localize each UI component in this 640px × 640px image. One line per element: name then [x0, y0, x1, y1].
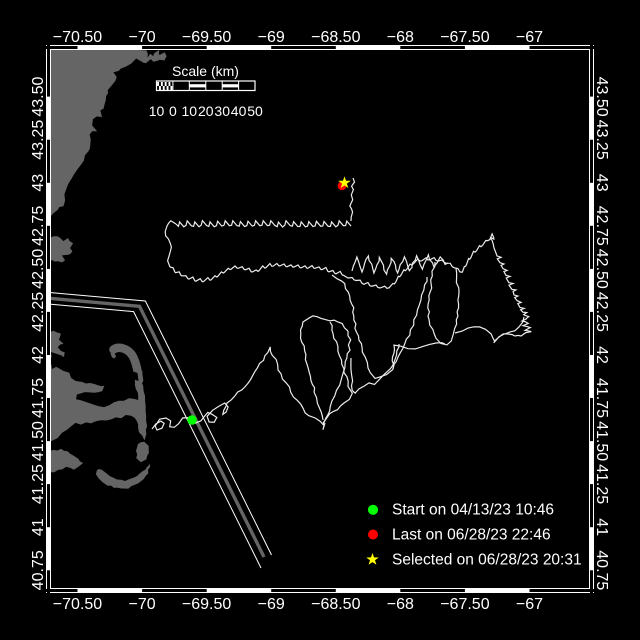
svg-text:−69.50: −69.50 [182, 29, 231, 46]
svg-text:41.50: 41.50 [30, 421, 47, 461]
svg-text:Scale (km): Scale (km) [172, 63, 239, 79]
svg-text:40: 40 [231, 103, 247, 119]
svg-text:−67.50: −67.50 [440, 596, 489, 613]
svg-text:41: 41 [30, 518, 47, 536]
svg-text:42.50: 42.50 [30, 249, 47, 289]
svg-text:42.25: 42.25 [593, 292, 610, 332]
svg-text:30: 30 [214, 103, 230, 119]
svg-text:43: 43 [30, 174, 47, 192]
svg-text:43.25: 43.25 [30, 120, 47, 160]
svg-text:−67: −67 [516, 596, 543, 613]
svg-text:Last on 06/28/23 22:46: Last on 06/28/23 22:46 [392, 527, 551, 544]
svg-text:43.50: 43.50 [593, 77, 610, 117]
svg-text:−68: −68 [387, 29, 414, 46]
svg-text:10: 10 [149, 103, 165, 119]
svg-text:−69: −69 [258, 596, 285, 613]
svg-text:41.25: 41.25 [593, 464, 610, 504]
svg-text:−68: −68 [387, 596, 414, 613]
svg-text:42: 42 [30, 346, 47, 364]
svg-text:42: 42 [593, 346, 610, 364]
svg-text:0: 0 [169, 103, 177, 119]
svg-text:42.25: 42.25 [30, 292, 47, 332]
svg-text:−70: −70 [129, 29, 156, 46]
svg-text:40.75: 40.75 [593, 550, 610, 590]
svg-text:20: 20 [198, 103, 214, 119]
svg-text:−70.50: −70.50 [53, 29, 102, 46]
svg-text:−68.50: −68.50 [311, 596, 360, 613]
svg-text:41.75: 41.75 [30, 378, 47, 418]
svg-text:50: 50 [247, 103, 263, 119]
svg-text:Selected on 06/28/23 20:31: Selected on 06/28/23 20:31 [392, 552, 582, 569]
svg-text:40.75: 40.75 [30, 550, 47, 590]
svg-text:42.75: 42.75 [593, 206, 610, 246]
svg-text:41.50: 41.50 [593, 421, 610, 461]
svg-text:10: 10 [182, 103, 198, 119]
svg-text:42.75: 42.75 [30, 206, 47, 246]
svg-text:43.25: 43.25 [593, 120, 610, 160]
svg-text:−67: −67 [516, 29, 543, 46]
svg-text:41.25: 41.25 [30, 464, 47, 504]
svg-text:−69.50: −69.50 [182, 596, 231, 613]
svg-text:41.75: 41.75 [593, 378, 610, 418]
svg-text:43: 43 [593, 174, 610, 192]
svg-text:−69: −69 [258, 29, 285, 46]
svg-text:−70: −70 [129, 596, 156, 613]
svg-text:41: 41 [593, 518, 610, 536]
svg-text:Start on 04/13/23 10:46: Start on 04/13/23 10:46 [392, 502, 554, 519]
svg-text:43.50: 43.50 [30, 76, 47, 116]
svg-text:42.50: 42.50 [593, 249, 610, 289]
svg-text:−67.50: −67.50 [440, 29, 489, 46]
svg-text:−70.50: −70.50 [53, 596, 102, 613]
svg-text:−68.50: −68.50 [311, 29, 360, 46]
